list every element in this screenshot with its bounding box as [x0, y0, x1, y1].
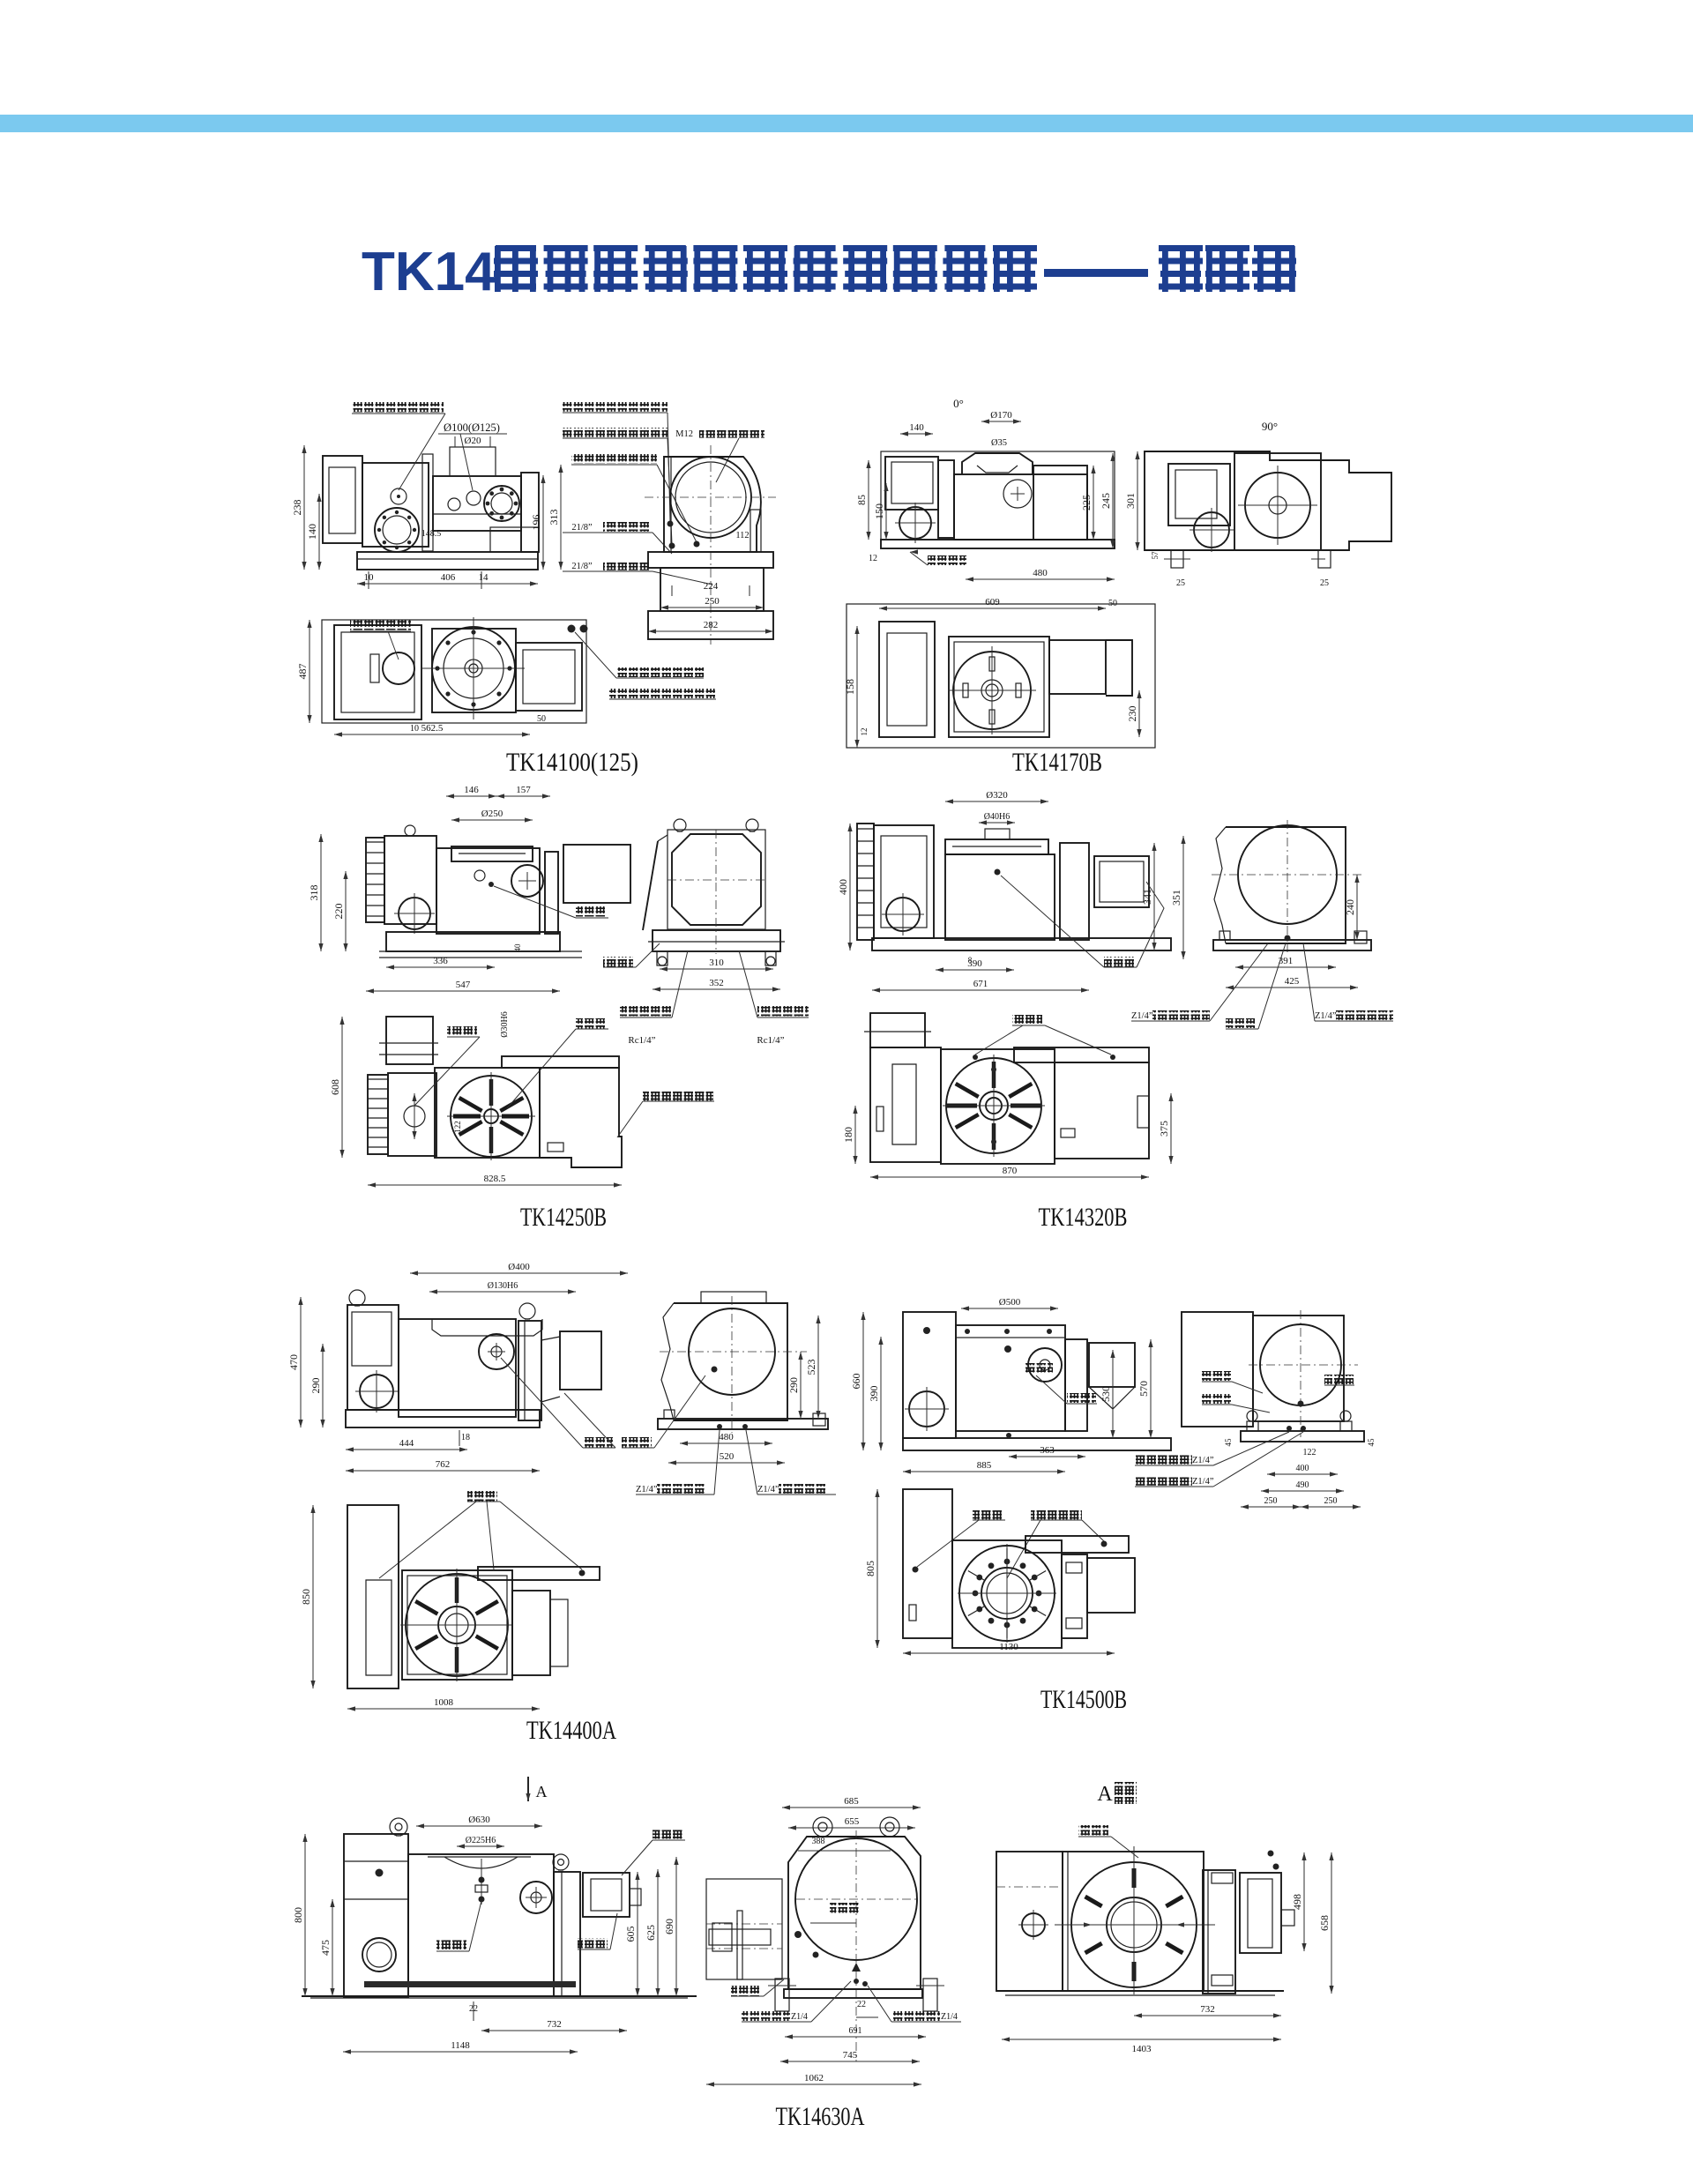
svg-text:562.5: 562.5 — [421, 723, 444, 734]
svg-text:Z1/4”: Z1/4” — [757, 1485, 779, 1495]
svg-text:10: 10 — [410, 724, 419, 734]
svg-text:TK14250B: TK14250B — [520, 1203, 607, 1232]
svg-text:363: 363 — [1040, 1445, 1055, 1456]
svg-text:671: 671 — [973, 979, 988, 989]
svg-text:Ø100(Ø125): Ø100(Ø125) — [444, 421, 500, 434]
svg-text:21/8”: 21/8” — [571, 562, 593, 571]
svg-text:8: 8 — [968, 956, 973, 965]
svg-text:21/8”: 21/8” — [571, 523, 593, 533]
svg-text:Ø630: Ø630 — [468, 1815, 490, 1825]
svg-text:250: 250 — [705, 596, 720, 607]
svg-text:250: 250 — [1264, 1496, 1278, 1506]
svg-text:14: 14 — [479, 572, 489, 583]
svg-text:57: 57 — [1151, 551, 1160, 560]
svg-text:140: 140 — [909, 422, 924, 433]
svg-text:Ø170: Ø170 — [990, 410, 1012, 421]
svg-text:690: 690 — [663, 1919, 675, 1934]
svg-text:313: 313 — [548, 510, 560, 526]
svg-text:406: 406 — [441, 572, 456, 583]
svg-text:Ø20: Ø20 — [465, 436, 481, 446]
svg-text:828.5: 828.5 — [484, 1174, 506, 1184]
svg-text:Ø400: Ø400 — [508, 1262, 530, 1272]
svg-text:352: 352 — [709, 978, 724, 988]
svg-text:148.5: 148.5 — [421, 529, 442, 539]
svg-text:50: 50 — [537, 714, 546, 724]
svg-text:625: 625 — [645, 1925, 657, 1941]
svg-text:180: 180 — [842, 1127, 854, 1143]
svg-text:885: 885 — [977, 1460, 992, 1471]
svg-text:45: 45 — [1224, 1438, 1233, 1447]
svg-text:12: 12 — [860, 728, 869, 736]
svg-text:0°: 0° — [953, 397, 964, 410]
svg-text:400: 400 — [1296, 1464, 1309, 1473]
svg-text:157: 157 — [516, 785, 531, 795]
svg-text:Ø35: Ø35 — [991, 438, 1007, 448]
svg-text:498: 498 — [1291, 1894, 1303, 1910]
svg-text:1403: 1403 — [1132, 2044, 1152, 2054]
svg-text:547: 547 — [456, 980, 471, 990]
svg-text:220: 220 — [332, 904, 345, 920]
svg-text:805: 805 — [864, 1561, 876, 1577]
svg-text:850: 850 — [300, 1589, 312, 1605]
svg-text:1148: 1148 — [451, 2040, 470, 2051]
svg-text:658: 658 — [1318, 1915, 1331, 1931]
svg-text:388: 388 — [812, 1837, 825, 1846]
svg-text:390: 390 — [868, 1386, 880, 1402]
svg-text:660: 660 — [850, 1374, 862, 1390]
svg-text:150: 150 — [873, 503, 885, 519]
svg-text:282: 282 — [704, 620, 719, 630]
svg-text:TK14170B: TK14170B — [1012, 748, 1102, 777]
svg-text:122: 122 — [1303, 1448, 1316, 1457]
svg-text:25: 25 — [1176, 578, 1185, 588]
svg-text:238: 238 — [291, 500, 303, 516]
svg-text:230: 230 — [1126, 706, 1138, 722]
svg-text:225: 225 — [1080, 495, 1093, 511]
svg-text:Ø500: Ø500 — [999, 1297, 1021, 1308]
svg-text:1008: 1008 — [434, 1697, 454, 1708]
svg-text:224: 224 — [704, 581, 719, 592]
svg-text:A: A — [1097, 1783, 1113, 1806]
svg-text:290: 290 — [787, 1377, 800, 1393]
svg-text:Z1/4: Z1/4 — [941, 2012, 958, 2022]
svg-text:M12: M12 — [675, 429, 693, 439]
svg-text:530: 530 — [1100, 1386, 1112, 1402]
svg-text:A: A — [536, 1783, 548, 1800]
svg-text:TK14400A: TK14400A — [526, 1716, 616, 1745]
svg-text:475: 475 — [319, 1940, 332, 1956]
svg-text:45: 45 — [1367, 1438, 1376, 1447]
svg-text:Rc1/4”: Rc1/4” — [628, 1035, 655, 1046]
svg-text:391: 391 — [1279, 956, 1294, 966]
svg-text:490: 490 — [1296, 1480, 1309, 1490]
svg-text:250: 250 — [1324, 1496, 1338, 1506]
svg-text:Ø225H6: Ø225H6 — [466, 1836, 496, 1845]
svg-text:425: 425 — [1285, 976, 1300, 987]
svg-text:240: 240 — [1344, 899, 1356, 915]
svg-text:22: 22 — [857, 2000, 866, 2009]
svg-text:Ø40H6: Ø40H6 — [984, 812, 1010, 822]
svg-text:691: 691 — [849, 2026, 862, 2036]
svg-text:351: 351 — [1170, 890, 1182, 906]
svg-text:870: 870 — [1003, 1166, 1018, 1176]
svg-text:480: 480 — [1033, 568, 1048, 578]
svg-text:196: 196 — [530, 515, 542, 531]
svg-text:12: 12 — [869, 554, 877, 563]
svg-text:745: 745 — [843, 2050, 858, 2061]
svg-text:375: 375 — [1158, 1121, 1170, 1137]
svg-text:685: 685 — [844, 1796, 859, 1807]
svg-text:TK14100(125): TK14100(125) — [506, 748, 638, 777]
svg-text:523: 523 — [805, 1360, 817, 1375]
svg-text:1130: 1130 — [999, 1642, 1018, 1652]
svg-text:470: 470 — [287, 1354, 300, 1370]
svg-text:Rc1/4”: Rc1/4” — [757, 1035, 784, 1046]
svg-text:570: 570 — [1137, 1381, 1150, 1397]
svg-text:Ø130H6: Ø130H6 — [488, 1281, 518, 1291]
svg-text:245: 245 — [1100, 493, 1112, 509]
svg-text:Z1/4”: Z1/4” — [1192, 1456, 1214, 1465]
svg-text:158: 158 — [844, 679, 856, 695]
svg-text:520: 520 — [720, 1451, 735, 1462]
svg-text:1062: 1062 — [804, 2073, 824, 2083]
svg-text:341: 341 — [1141, 889, 1153, 905]
svg-text:608: 608 — [329, 1079, 341, 1095]
svg-text:800: 800 — [292, 1907, 304, 1923]
svg-text:290: 290 — [310, 1378, 322, 1394]
svg-text:Ø250: Ø250 — [481, 809, 503, 819]
svg-text:318: 318 — [308, 885, 320, 901]
svg-text:605: 605 — [624, 1927, 637, 1942]
svg-text:Ø320: Ø320 — [986, 790, 1008, 801]
svg-text:732: 732 — [547, 2019, 562, 2030]
svg-text:Z1/4”: Z1/4” — [1131, 1011, 1153, 1021]
svg-text:50: 50 — [1108, 599, 1117, 608]
svg-text:Z1/4”: Z1/4” — [636, 1485, 658, 1495]
svg-text:301: 301 — [1124, 493, 1137, 509]
svg-text:655: 655 — [845, 1816, 860, 1827]
svg-text:310: 310 — [709, 958, 724, 968]
svg-text:732: 732 — [1200, 2004, 1215, 2015]
svg-text:Z1/4: Z1/4 — [791, 2012, 808, 2022]
svg-text:400: 400 — [837, 879, 849, 895]
svg-text:444: 444 — [399, 1438, 414, 1449]
svg-text:TK14500B: TK14500B — [1040, 1685, 1127, 1714]
svg-text:25: 25 — [1320, 578, 1329, 588]
svg-text:112: 112 — [735, 531, 749, 540]
svg-text:487: 487 — [296, 664, 309, 680]
svg-text:85: 85 — [855, 495, 868, 505]
svg-text:18: 18 — [461, 1433, 470, 1442]
svg-text:146: 146 — [464, 785, 479, 795]
svg-text:TK14320B: TK14320B — [1039, 1203, 1128, 1232]
svg-text:762: 762 — [436, 1459, 451, 1470]
svg-text:140: 140 — [306, 524, 318, 540]
svg-text:40: 40 — [513, 943, 522, 952]
svg-text:122: 122 — [453, 1121, 462, 1133]
svg-text:Ø30H6: Ø30H6 — [500, 1011, 510, 1037]
svg-text:Z1/4”: Z1/4” — [1315, 1011, 1337, 1021]
svg-text:480: 480 — [719, 1432, 734, 1442]
svg-text:90°: 90° — [1262, 420, 1278, 433]
svg-text:TK14630A: TK14630A — [776, 2102, 865, 2131]
svg-text:Z1/4”: Z1/4” — [1192, 1477, 1214, 1487]
svg-text:TK14: TK14 — [362, 242, 496, 302]
svg-text:609: 609 — [985, 597, 1000, 607]
svg-text:336: 336 — [433, 956, 448, 966]
